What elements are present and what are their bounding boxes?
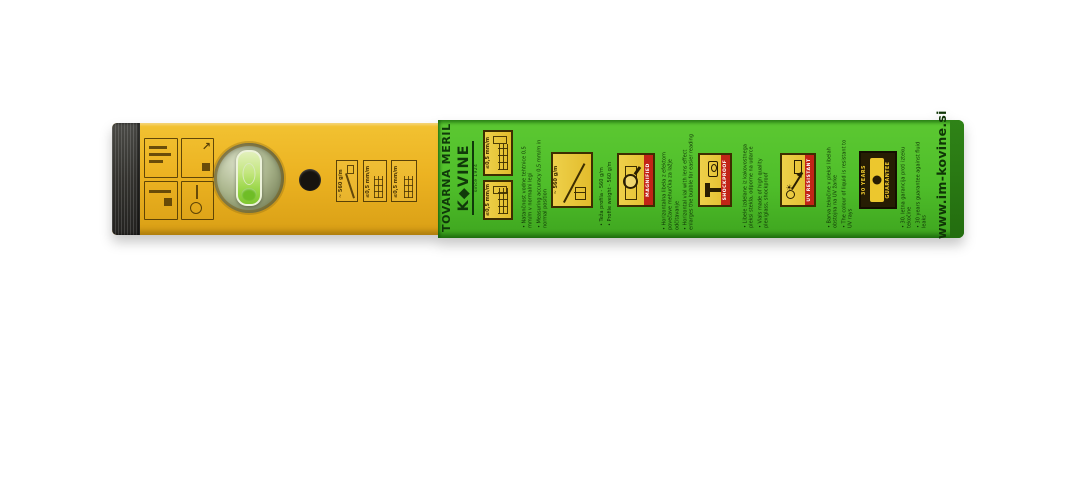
level-end-cap (112, 123, 140, 235)
website-url: www.im-kovine.si (934, 121, 950, 239)
printed-spec-weight-label: ~ 560 g/m (338, 169, 344, 198)
magnified-band-label: MAGNIFIED (644, 155, 653, 205)
bullet-shockproof: • Libele izdelane iz kakovostnega pleksi… (743, 132, 770, 228)
uv-band-label: UV RESISTANT (805, 155, 814, 205)
plumb-circle-icon (190, 202, 202, 214)
bullet-magnified-si: • Horizontalna libela z efektom povečave… (661, 130, 680, 230)
bullet-weight: • Teža profila - 560 g/m • Profile weigh… (599, 134, 614, 226)
brand-logo: K◆VINE (457, 141, 474, 214)
shockproof-icon: SHOCKPROOF (698, 153, 732, 207)
photo-canvas: ↗ ~ 560 g/m (0, 0, 1080, 480)
printed-spec-accuracy-1: ≤0,5 mm/m (363, 160, 387, 202)
printed-spec-weight: ~ 560 g/m (336, 160, 358, 202)
level-vial (236, 150, 262, 206)
sun-icon (786, 190, 795, 199)
uv-resistant-icon: ☀ UV RESISTANT (780, 153, 816, 207)
vial-marking-ring (243, 163, 256, 185)
accuracy-vertical-icon: ≤0,5 mm/m (483, 180, 513, 220)
guarantee-icon: 30 YEARS GUARANTEE (859, 151, 897, 209)
pictogram-direction-icon: ↗ (181, 138, 215, 178)
packaging-sleeve: TOVARNA MERIL K◆VINE since 1924 ≤0,5 mm/… (438, 120, 964, 238)
shockproof-band-label: SHOCKPROOF (721, 155, 730, 205)
accuracy-vertical-label: ≤0,5 mm/m (485, 182, 492, 218)
guarantee-label: GUARANTEE (885, 153, 893, 207)
guarantee-years-label: 30 YEARS (861, 153, 869, 207)
spirit-level-product: ↗ ~ 560 g/m (112, 118, 964, 240)
printed-pictogram-grid: ↗ (144, 138, 214, 220)
bullet-accuracy-si: • Natančnost vodne tehtnice 0,5 mm/m v n… (522, 132, 535, 228)
guarantee-level-icon (870, 158, 884, 202)
printed-spec-accuracy-2-label: ≤0,5 mm/m (393, 166, 399, 198)
bullet-guarantee-si: • 30. letna garancija proti izteku tekoč… (901, 132, 914, 228)
bullet-weight-en: • Profile weight - 560 g/m (607, 134, 613, 226)
brand-since: since 1924 (474, 124, 479, 232)
magnifier-icon (623, 174, 638, 189)
pictogram-usage-icon (144, 138, 178, 178)
sleeve-right-edge (950, 120, 964, 238)
printed-spec-accuracy-2: ≤0,5 mm/m (391, 160, 417, 202)
bullet-guarantee: • 30. letna garancija proti izteku tekoč… (901, 132, 928, 228)
bullet-uv: • Barva tekočine v pleksi libelah obstoj… (827, 132, 854, 228)
printed-spec-accuracy-1-label: ≤0,5 mm/m (365, 166, 371, 198)
bullet-shockproof-en: • Vials made of high quality plexiglass,… (757, 132, 770, 228)
bullet-accuracy-en: • Measuring accuracy 0,5 mm/m in normal … (536, 132, 549, 228)
level-yellow-body: ↗ ~ 560 g/m (112, 123, 442, 235)
vial-bubble (242, 188, 257, 201)
arrow-up-right-icon: ↗ (202, 140, 211, 153)
bullet-shockproof-si: • Libele izdelane iz kakovostnega pleksi… (743, 132, 756, 228)
brand-name: TOVARNA MERIL (440, 124, 453, 232)
bullet-magnified-en: • Horizontal vial with lens effect enlar… (682, 130, 695, 230)
hanging-hole (299, 169, 321, 191)
brand-block: TOVARNA MERIL K◆VINE since 1924 (440, 124, 486, 232)
bullet-accuracy: • Natančnost vodne tehtnice 0,5 mm/m v n… (522, 132, 549, 228)
bullet-weight-si: • Teža profila - 560 g/m (599, 134, 605, 226)
profile-weight-label: ~ 560 g/m (553, 154, 560, 206)
bullet-magnified: • Horizontalna libela z efektom povečave… (661, 130, 694, 230)
magnified-icon: MAGNIFIED (617, 153, 655, 207)
accuracy-horizontal-icon: ≤0,5 mm/m (483, 130, 513, 176)
pictogram-level-icon (144, 181, 178, 221)
bullet-uv-en: • The colour of liquid is resistant to U… (841, 132, 854, 228)
profile-weight-icon: ~ 560 g/m (551, 152, 593, 208)
bullet-guarantee-en: • 30 years guarantee against fluid leaks (915, 132, 928, 228)
accuracy-horizontal-label: ≤0,5 mm/m (485, 132, 492, 174)
pictogram-plumb-icon (181, 181, 215, 221)
bullet-uv-si: • Barva tekočine v pleksi libelah obstoj… (827, 132, 840, 228)
vial-window (214, 143, 284, 213)
